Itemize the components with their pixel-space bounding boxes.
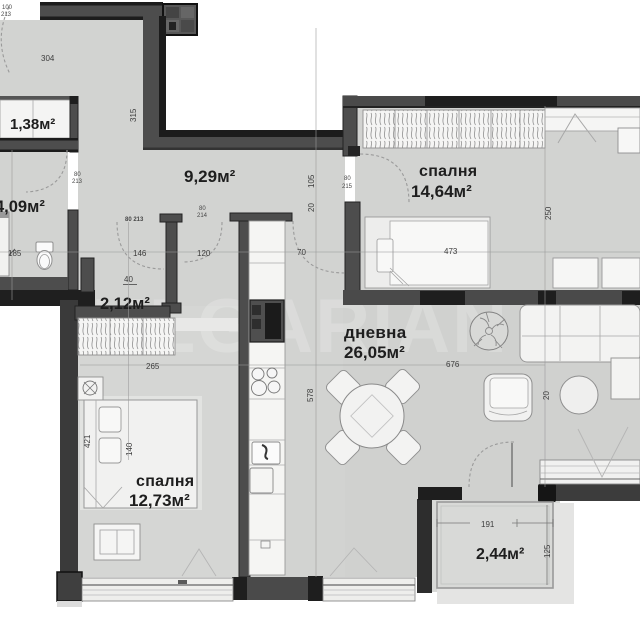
svg-text:213: 213 <box>1 12 12 18</box>
svg-text:185: 185 <box>8 249 22 258</box>
svg-text:105: 105 <box>307 174 316 188</box>
svg-text:315: 315 <box>129 108 138 122</box>
svg-text:80: 80 <box>344 176 351 182</box>
svg-text:спалня: спалня <box>136 473 194 490</box>
svg-text:4,09м²: 4,09м² <box>0 198 45 216</box>
svg-text:120: 120 <box>197 249 211 258</box>
svg-text:125: 125 <box>543 544 552 558</box>
svg-text:12,73м²: 12,73м² <box>129 491 190 510</box>
svg-text:2,12м²: 2,12м² <box>100 295 150 313</box>
svg-text:80: 80 <box>199 206 206 212</box>
svg-text:191: 191 <box>481 520 495 529</box>
svg-text:2,44м²: 2,44м² <box>476 546 524 563</box>
svg-text:578: 578 <box>306 388 315 402</box>
svg-text:473: 473 <box>444 247 458 256</box>
svg-text:26,05м²: 26,05м² <box>344 343 405 362</box>
svg-text:214: 214 <box>197 213 208 219</box>
svg-text:20: 20 <box>542 391 551 400</box>
svg-text:спалня: спалня <box>419 163 477 180</box>
svg-text:1,38м²: 1,38м² <box>10 116 55 133</box>
svg-text:265: 265 <box>146 362 160 371</box>
svg-text:146: 146 <box>133 249 147 258</box>
svg-text:215: 215 <box>342 184 353 190</box>
svg-text:676: 676 <box>446 360 460 369</box>
svg-text:140: 140 <box>125 442 134 456</box>
svg-text:80: 80 <box>74 172 81 178</box>
svg-text:213: 213 <box>72 179 83 185</box>
svg-text:304: 304 <box>41 54 55 63</box>
svg-text:421: 421 <box>83 434 92 448</box>
svg-text:70: 70 <box>297 248 306 257</box>
svg-text:14,64м²: 14,64м² <box>411 182 472 201</box>
svg-text:80 213: 80 213 <box>125 217 144 223</box>
svg-text:9,29м²: 9,29м² <box>184 167 236 186</box>
svg-text:20: 20 <box>307 203 316 212</box>
svg-text:100: 100 <box>2 5 13 11</box>
svg-text:дневна: дневна <box>344 323 407 342</box>
svg-text:250: 250 <box>544 206 553 220</box>
